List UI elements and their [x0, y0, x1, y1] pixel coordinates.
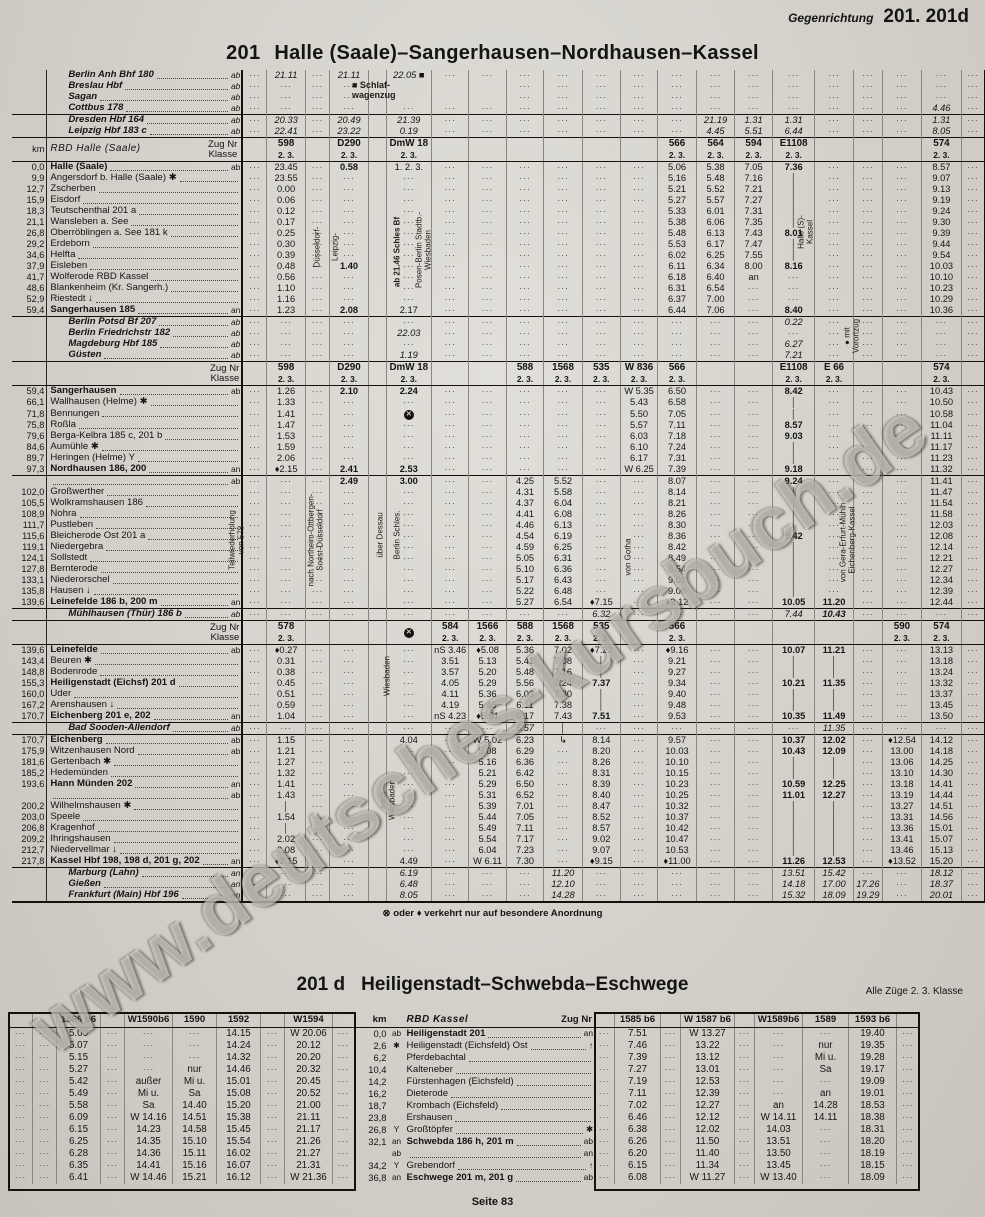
time-cell: 4.41	[506, 509, 544, 520]
time-cell: ···	[267, 339, 305, 350]
time-cell: 7.51	[582, 711, 620, 723]
time-cell: ···	[853, 542, 882, 553]
time-cell: 15.54	[217, 1136, 261, 1148]
time-cell: 7.11	[658, 420, 697, 431]
time-cell: ···	[305, 453, 330, 464]
time-cell: ···	[330, 700, 368, 711]
km-cell: 9,9	[12, 173, 47, 184]
time-cell: ···	[815, 195, 853, 206]
time-cell: ···	[305, 890, 330, 902]
time-cell: 10.50	[921, 397, 961, 408]
time-cell: ···	[735, 1148, 755, 1160]
time-cell: ···	[506, 890, 544, 902]
time-cell: ···	[242, 442, 267, 453]
time-cell: ···	[469, 305, 506, 317]
time-cell: 8.40	[582, 790, 620, 801]
time-cell: ···	[961, 509, 984, 520]
time-cell: ···	[330, 834, 368, 845]
time-cell: ···	[330, 420, 368, 431]
time-cell: ···	[267, 520, 305, 531]
time-cell: ···	[431, 879, 468, 890]
time-cell: ···	[582, 868, 620, 880]
train-header-cell: D2902. 3.	[330, 138, 368, 162]
time-cell: ···	[431, 239, 468, 250]
time-cell: ···	[333, 1064, 355, 1076]
time-cell: ···	[883, 350, 922, 362]
time-cell: 6.40	[696, 272, 734, 283]
time-cell: ···	[431, 397, 468, 408]
time-cell: ···	[853, 195, 882, 206]
km-cell: 36,8	[355, 1172, 389, 1184]
time-cell: ···	[469, 723, 506, 735]
time-cell: ···	[431, 328, 468, 339]
time-cell: 8.07	[658, 476, 697, 488]
time-cell: ···	[853, 531, 882, 542]
time-cell: ···	[469, 879, 506, 890]
time-cell: ···	[883, 305, 922, 317]
time-cell: ···	[883, 228, 922, 239]
time-cell: ···	[506, 328, 544, 339]
time-cell: ···	[735, 757, 773, 768]
time-cell: 1.21	[267, 746, 305, 757]
time-cell: ···	[921, 70, 961, 81]
time-cell: an	[735, 272, 773, 283]
time-cell: ···	[803, 1028, 849, 1041]
time-cell: ···	[125, 1028, 173, 1041]
time-cell: 12.53	[681, 1076, 735, 1088]
time-cell: ···	[242, 757, 267, 768]
time-cell: ···	[544, 823, 582, 834]
time-cell: 13.18	[921, 656, 961, 667]
time-cell: 7.06	[696, 305, 734, 317]
direction-marker	[389, 1100, 405, 1112]
train-header-cell	[582, 138, 620, 162]
train-header-cell: W 8362. 3.	[620, 362, 657, 386]
time-cell: ···	[330, 542, 368, 553]
time-cell: 7.24	[544, 678, 582, 689]
time-cell: 2.10	[330, 386, 368, 398]
time-cell: ···	[582, 431, 620, 442]
time-cell: 5.33	[658, 206, 697, 217]
km-cell: 139,6	[12, 645, 47, 657]
time-cell: 10.23	[658, 779, 697, 790]
time-cell: 7.31	[658, 453, 697, 464]
time-cell: 13.19	[883, 790, 922, 801]
time-cell: ···	[506, 305, 544, 317]
km-cell: 29,2	[12, 239, 47, 250]
km-cell	[12, 790, 47, 801]
time-cell: ···	[469, 239, 506, 250]
train-header-cell	[853, 362, 882, 386]
time-cell: ···	[469, 317, 506, 329]
train-header-cell	[815, 621, 853, 645]
time-cell: 14.25	[921, 757, 961, 768]
time-cell: 5.06	[658, 162, 697, 174]
km-cell: 37,9	[12, 261, 47, 272]
time-cell: ···	[696, 339, 734, 350]
train-header-cell: 5742. 3.	[921, 621, 961, 645]
time-cell: ···	[544, 162, 582, 174]
branch-train-number-row: 1586 b6W1590b615901592W1594kmRBD KasselZ…	[9, 1012, 919, 1028]
time-cell: 21.19	[696, 115, 734, 127]
time-cell: W 5.02	[469, 735, 506, 747]
time-cell: ···	[582, 317, 620, 329]
time-cell: W 20.06	[285, 1028, 333, 1041]
time-cell: 10.42	[658, 823, 697, 834]
time-cell: ···	[330, 868, 368, 880]
time-cell: ···	[242, 217, 267, 228]
time-cell: 9.34	[658, 678, 697, 689]
time-cell: ···	[853, 746, 882, 757]
time-cell: 6.34	[696, 261, 734, 272]
train-header-cell	[242, 621, 267, 645]
time-cell: ···	[330, 609, 368, 621]
km-cell: 209,2	[12, 834, 47, 845]
train-header-cell	[735, 1012, 755, 1028]
time-cell: 8.42	[658, 542, 697, 553]
time-cell: 0.48	[267, 261, 305, 272]
time-cell: ···	[853, 92, 882, 103]
time-cell: ···	[9, 1124, 33, 1136]
time-cell: ···	[386, 757, 431, 768]
train-header-cell	[305, 621, 330, 645]
train-header-cell	[431, 362, 468, 386]
time-cell: 15.38	[217, 1112, 261, 1124]
class-note: Alle Züge 2. 3. Klasse	[866, 986, 963, 997]
station-cell: Kassel Hbf 198, 198 d, 201 g, 202an	[47, 856, 242, 868]
time-cell: ···	[544, 397, 582, 408]
time-cell: ···	[853, 126, 882, 138]
connection-row: Berlin Friedrichstr 182ab············22.…	[12, 328, 985, 339]
time-cell: ···	[735, 81, 773, 92]
time-cell: 14.35	[125, 1136, 173, 1148]
route-note: von Gotha	[625, 539, 634, 576]
time-cell: ···	[620, 856, 657, 868]
time-cell: 21.26	[285, 1136, 333, 1148]
time-cell: ···	[506, 442, 544, 453]
time-cell: 19.09	[849, 1076, 897, 1088]
km-cell: 139,6	[12, 597, 47, 609]
time-cell: ···	[658, 103, 697, 115]
time-cell: 20.52	[285, 1088, 333, 1100]
time-cell: 9.18	[772, 464, 814, 476]
time-cell: ···	[386, 564, 431, 575]
time-cell: ···	[242, 553, 267, 564]
main-table-footnote: ⊗ oder ♦ verkehrt nur auf besondere Anor…	[0, 908, 985, 919]
time-cell: ···	[883, 317, 922, 329]
train-header-cell: E11082. 3.	[772, 138, 814, 162]
time-cell: 8.26	[582, 757, 620, 768]
time-cell: ···	[897, 1028, 919, 1041]
time-cell: 8.00	[735, 261, 773, 272]
time-cell: ···	[469, 250, 506, 261]
time-cell: ···	[815, 294, 853, 305]
time-cell: ···	[9, 1064, 33, 1076]
time-cell: ···	[582, 70, 620, 81]
time-cell: ···	[267, 487, 305, 498]
time-cell: 5.36	[506, 645, 544, 657]
time-cell: ···	[469, 294, 506, 305]
time-cell: 2.08	[330, 305, 368, 317]
time-cell: ···	[620, 81, 657, 92]
time-cell: ···	[544, 115, 582, 127]
time-cell	[368, 453, 386, 464]
time-cell: ···	[755, 1040, 803, 1052]
time-cell: ···	[267, 723, 305, 735]
time-cell: 10.32	[658, 801, 697, 812]
time-cell: ···	[696, 397, 734, 408]
train-header-cell: 5982. 3.	[267, 362, 305, 386]
time-cell: ···	[961, 746, 984, 757]
time-cell: ···	[961, 542, 984, 553]
station-cell: Ihringshausen	[47, 834, 242, 845]
time-cell: 4.46	[921, 103, 961, 115]
time-cell: 10.10	[921, 272, 961, 283]
time-cell: ···	[883, 294, 922, 305]
time-cell: ···	[242, 678, 267, 689]
time-cell: ···	[620, 645, 657, 657]
time-cell: ···	[242, 239, 267, 250]
time-cell: ···	[853, 81, 882, 92]
time-cell: ···	[735, 801, 773, 812]
time-cell: ···	[506, 350, 544, 362]
station-row: ······6.28···14.3615.1116.02···21.27···a…	[9, 1148, 919, 1160]
time-cell: ···	[696, 609, 734, 621]
station-cell: Heiligenstadt (Eichsfeld) Ost↑	[405, 1040, 595, 1052]
time-cell: 8.14	[582, 735, 620, 747]
time-cell: ···	[883, 239, 922, 250]
station-cell: Magdeburg Hbf 185ab	[47, 339, 242, 350]
direction-marker	[389, 1076, 405, 1088]
time-cell: ···	[620, 746, 657, 757]
time-cell: ···	[330, 656, 368, 667]
direction-marker: ab	[389, 1148, 405, 1160]
time-cell: │	[772, 509, 814, 520]
time-cell: ···	[961, 700, 984, 711]
station-cell: Mühlhausen (Thür) 186 bab	[47, 609, 242, 621]
time-cell: ···	[386, 420, 431, 431]
train-header-cell: DmW 182. 3.	[386, 362, 431, 386]
time-cell: ···	[305, 81, 330, 92]
time-cell: 5.44	[469, 812, 506, 823]
time-cell: ···	[883, 645, 922, 657]
time-cell: ···	[735, 531, 773, 542]
station-cell: Großwerther	[47, 487, 242, 498]
time-cell: ···	[883, 868, 922, 880]
time-cell: ···	[696, 317, 734, 329]
time-cell: ···	[9, 1028, 33, 1041]
time-cell: an	[803, 1088, 849, 1100]
time-cell: 8.57	[921, 162, 961, 174]
time-cell: ···	[853, 103, 882, 115]
time-cell: Sa	[803, 1064, 849, 1076]
time-cell: ···	[883, 184, 922, 195]
time-cell: 19.35	[849, 1040, 897, 1052]
time-cell: ···	[815, 239, 853, 250]
time-cell: ···	[696, 498, 734, 509]
time-cell: ···	[544, 464, 582, 476]
time-cell: 11.11	[921, 431, 961, 442]
train-header-cell: D2902. 3.	[330, 362, 368, 386]
km-cell: 79,6	[12, 431, 47, 442]
km-cell	[12, 868, 47, 880]
time-cell: 6.03	[506, 689, 544, 700]
time-cell: ···	[386, 397, 431, 408]
time-cell: 0.06	[267, 195, 305, 206]
time-cell: ···	[305, 856, 330, 868]
time-cell: ···	[9, 1112, 33, 1124]
time-cell: ···	[961, 126, 984, 138]
time-cell: ···	[469, 408, 506, 420]
station-row: ······5.00·········14.15···W 20.06···0,0…	[9, 1028, 919, 1041]
time-cell: ···	[853, 564, 882, 575]
time-cell: 15.20	[217, 1100, 261, 1112]
train-header-cell	[620, 138, 657, 162]
time-cell: ···	[582, 408, 620, 420]
time-cell: ···	[431, 735, 468, 747]
time-cell: 14.30	[921, 768, 961, 779]
time-cell: ···	[620, 115, 657, 127]
time-cell: ···	[242, 162, 267, 174]
train-header-cell: 5742. 3.	[921, 138, 961, 162]
time-cell: ···	[33, 1136, 57, 1148]
km-cell: 155,3	[12, 678, 47, 689]
time-cell: ···	[544, 206, 582, 217]
time-cell: ···	[735, 746, 773, 757]
time-cell: ···	[735, 1100, 755, 1112]
time-cell: ···	[696, 328, 734, 339]
time-cell: ···	[961, 317, 984, 329]
time-cell: ···	[735, 823, 773, 834]
marker-header	[389, 1012, 405, 1028]
time-cell: ···	[431, 812, 468, 823]
time-cell: 0.39	[267, 250, 305, 261]
gegenrichtung-label: Gegenrichtung	[788, 11, 873, 25]
train-header-cell	[9, 1012, 33, 1028]
time-cell: ···	[696, 597, 734, 609]
connection-row: Frankfurt (Main) Hbf 196an············8.…	[12, 890, 985, 902]
time-cell: 21.17	[285, 1124, 333, 1136]
time-cell: ···	[242, 126, 267, 138]
time-cell: ···	[696, 746, 734, 757]
time-cell: 18.09	[849, 1172, 897, 1184]
time-cell: 15.01	[217, 1076, 261, 1088]
km-cell: 10,4	[355, 1064, 389, 1076]
time-cell: 5.10	[506, 564, 544, 575]
time-cell: ···	[267, 890, 305, 902]
time-cell: ···	[735, 868, 773, 880]
time-cell: ···	[582, 305, 620, 317]
time-cell: 10.59	[772, 779, 814, 790]
time-cell: ···	[815, 103, 853, 115]
time-cell: ···	[883, 272, 922, 283]
train-header-cell	[469, 362, 506, 386]
time-cell: ···	[261, 1172, 285, 1184]
time-cell: ···	[469, 442, 506, 453]
time-cell: ···	[815, 487, 853, 498]
station-cell: Leinefeldeab	[47, 645, 242, 657]
time-cell: 11.21	[815, 645, 853, 657]
km-cell: 160,0	[12, 689, 47, 700]
time-cell: ···	[506, 70, 544, 81]
station-row: 155,3Heiligenstadt (Eichsf) 201 d···0.45…	[12, 678, 985, 689]
time-cell: 8.39	[582, 779, 620, 790]
time-cell: 7.05	[735, 162, 773, 174]
time-cell: ···	[883, 195, 922, 206]
time-cell: ···	[772, 723, 814, 735]
route-name: Halle (Saale)–Sangerhausen–Nordhausen–Ka…	[274, 42, 759, 64]
km-cell: 34,2	[355, 1160, 389, 1172]
time-cell: 1.31	[921, 115, 961, 127]
time-cell: ···	[333, 1136, 355, 1148]
time-cell: 5.00	[57, 1028, 101, 1041]
time-cell: ···	[961, 823, 984, 834]
time-cell: │	[772, 823, 814, 834]
time-cell: ···	[620, 305, 657, 317]
time-cell: ···	[242, 879, 267, 890]
time-cell: ···	[242, 779, 267, 790]
time-cell: ···	[305, 656, 330, 667]
time-cell: ···	[544, 272, 582, 283]
time-cell: 12.14	[921, 542, 961, 553]
time-cell: ···	[544, 431, 582, 442]
time-cell: ···	[696, 103, 734, 115]
time-cell: ···	[735, 1028, 755, 1041]
time-cell: ···	[735, 520, 773, 531]
time-cell: ···	[469, 386, 506, 398]
time-cell: ···	[735, 812, 773, 823]
time-cell: ···	[431, 217, 468, 228]
time-cell: │	[544, 723, 582, 735]
time-cell: ···	[544, 103, 582, 115]
time-cell: 5.27	[57, 1064, 101, 1076]
time-cell: 10.43	[921, 386, 961, 398]
km-cell: 2,6	[355, 1040, 389, 1052]
time-cell: 6.20	[615, 1148, 661, 1160]
train-header-cell	[853, 621, 882, 645]
train-header-cell: ✕	[386, 621, 431, 645]
time-cell: 7.44	[772, 609, 814, 621]
time-cell: 14.41	[921, 779, 961, 790]
time-cell: 6.25	[544, 542, 582, 553]
time-cell: │	[815, 667, 853, 678]
time-cell: 7.16	[544, 667, 582, 678]
train-header-cell	[333, 1012, 355, 1028]
time-cell: 10.53	[658, 845, 697, 856]
time-cell: 7.08	[544, 656, 582, 667]
time-cell: 18.37	[921, 879, 961, 890]
time-cell: 11.58	[921, 509, 961, 520]
time-cell: ···	[582, 103, 620, 115]
time-cell: 1.40	[330, 261, 368, 272]
time-cell: 13.06	[883, 757, 922, 768]
time-cell: ···	[961, 531, 984, 542]
connection-row: Saganab·································…	[12, 92, 985, 103]
station-cell: Marburg (Lahn)an	[47, 868, 242, 880]
time-cell: ···	[735, 1052, 755, 1064]
time-cell	[368, 845, 386, 856]
station-row: ······6.35···14.4115.1616.07···21.31···3…	[9, 1160, 919, 1172]
time-cell: ···	[333, 1076, 355, 1088]
time-cell: ···	[386, 609, 431, 621]
time-cell: 5.56	[506, 678, 544, 689]
time-cell: 11.01	[772, 790, 814, 801]
time-cell: ···	[267, 553, 305, 564]
station-cell: Großtöpfer✱	[405, 1124, 595, 1136]
station-cell: ab	[47, 790, 242, 801]
time-cell: ···	[431, 520, 468, 531]
time-cell: ···	[333, 1148, 355, 1160]
